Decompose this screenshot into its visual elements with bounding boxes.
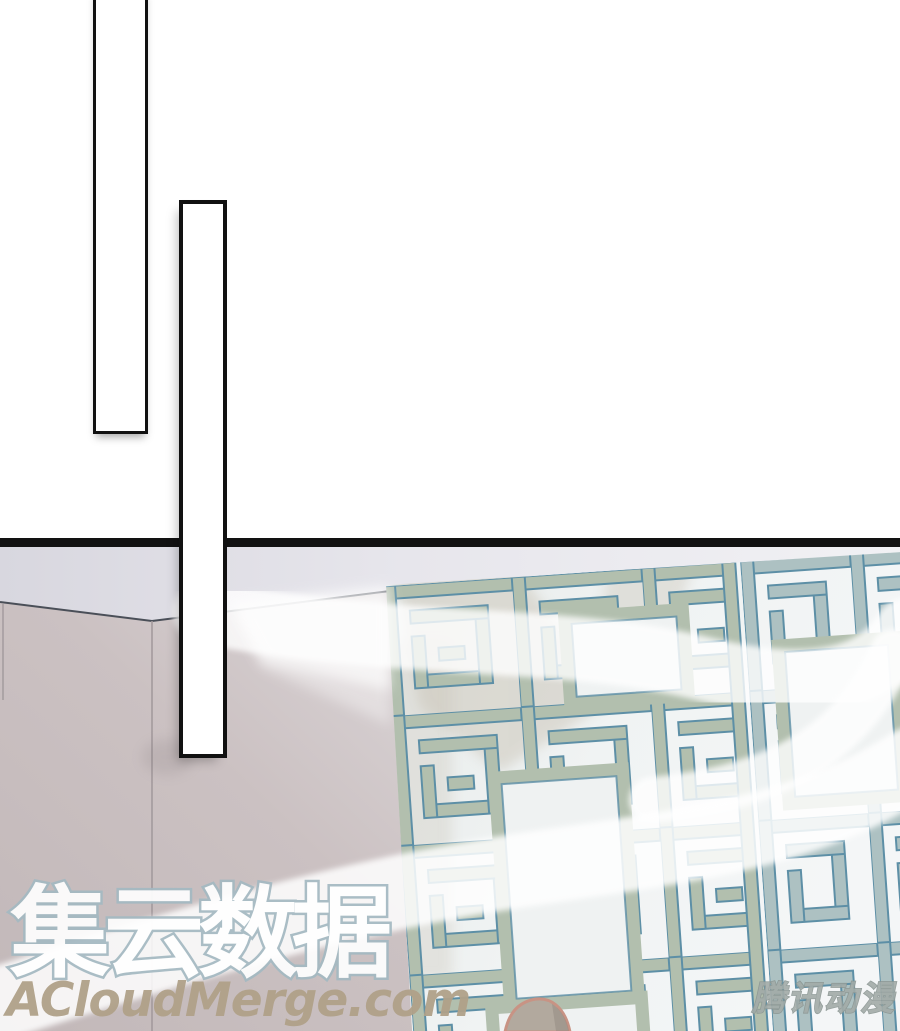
panel-top-border	[0, 538, 900, 547]
white-strip-panel-1	[93, 0, 148, 434]
comic-page: 集云数据 ACloudMerge.com 腾讯动漫	[0, 0, 900, 1031]
publisher-logo-text: 腾讯动漫	[750, 979, 900, 1019]
watermark-url-text: ACloudMerge.com	[2, 973, 470, 1028]
white-strip-panel-2	[179, 200, 227, 758]
